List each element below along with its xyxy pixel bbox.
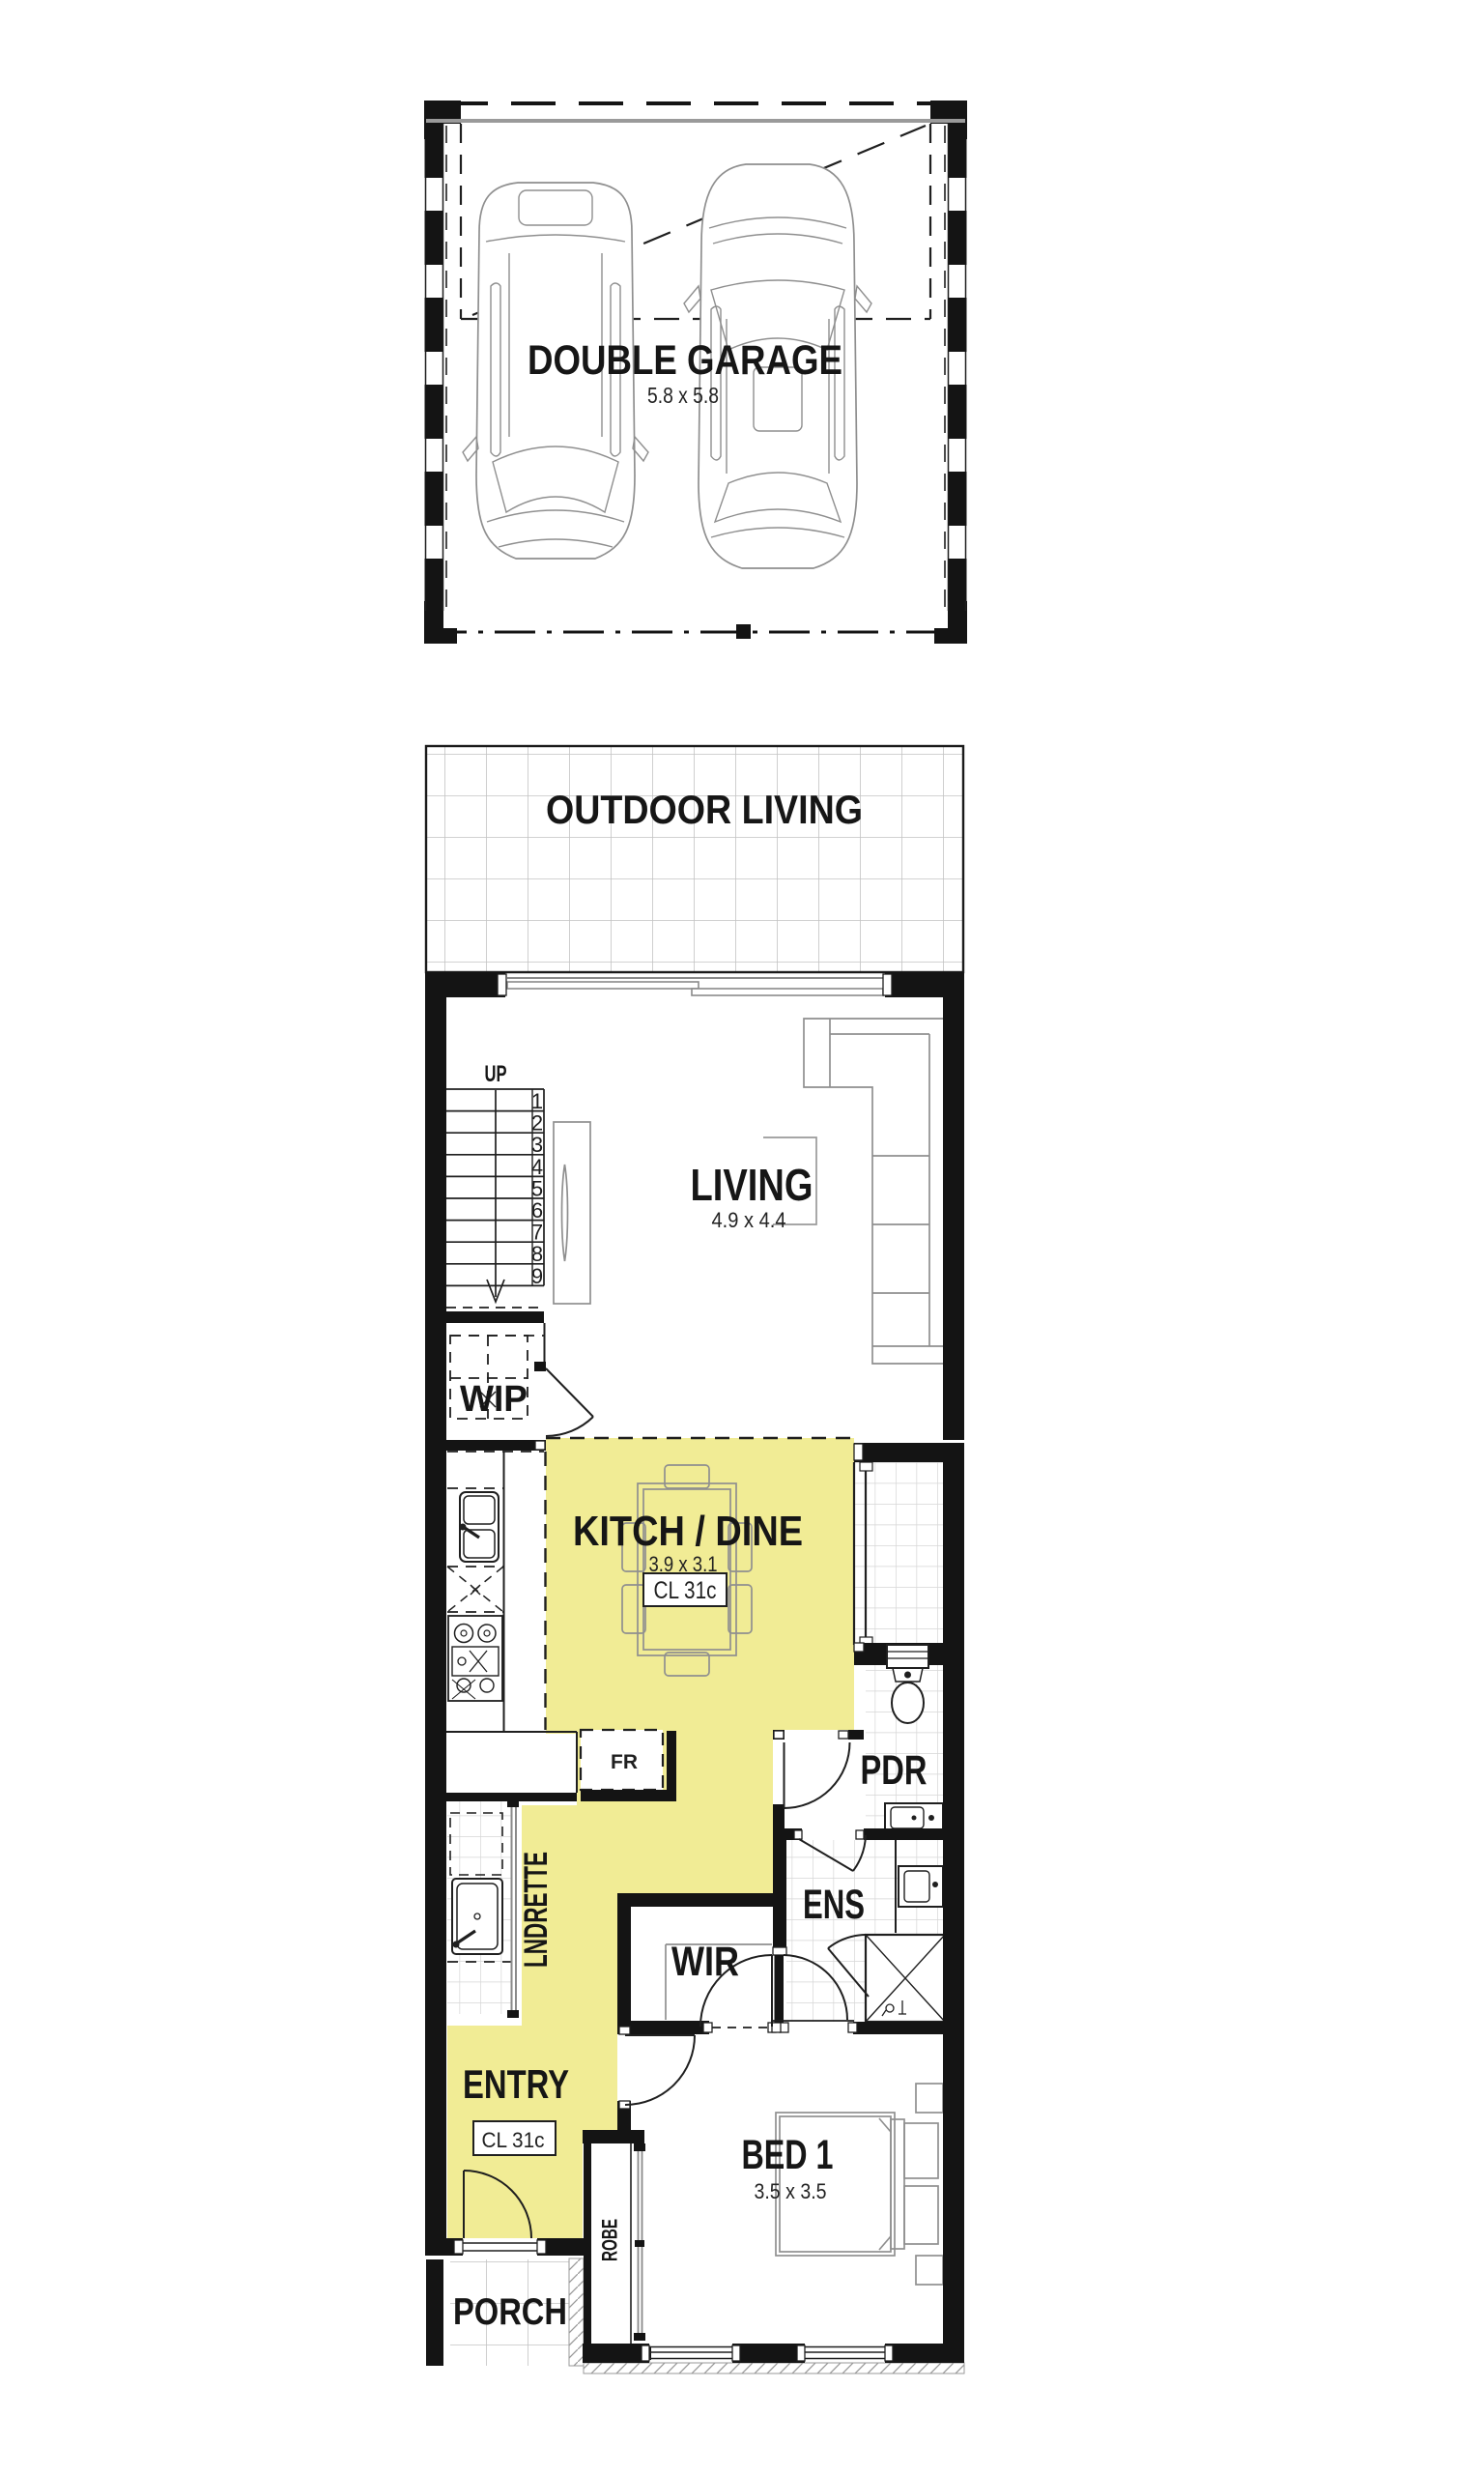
svg-text:WIP: WIP <box>460 1379 528 1420</box>
svg-text:1: 1 <box>531 1089 543 1113</box>
svg-text:BED 1: BED 1 <box>742 2132 834 2178</box>
svg-text:7: 7 <box>531 1221 543 1245</box>
svg-text:CL 31c: CL 31c <box>482 2128 545 2152</box>
svg-text:ENTRY: ENTRY <box>463 2061 569 2107</box>
svg-text:FR: FR <box>611 1751 638 1773</box>
svg-text:8: 8 <box>531 1242 543 1266</box>
svg-text:LIVING: LIVING <box>691 1160 813 1210</box>
svg-text:PDR: PDR <box>861 1747 927 1794</box>
svg-text:UP: UP <box>485 1061 507 1087</box>
svg-text:ROBE: ROBE <box>598 2219 622 2261</box>
svg-text:PORCH: PORCH <box>453 2291 567 2333</box>
svg-text:6: 6 <box>531 1198 543 1223</box>
svg-text:3.5 x 3.5: 3.5 x 3.5 <box>755 2179 827 2203</box>
svg-text:5: 5 <box>531 1176 543 1200</box>
svg-text:5.8 x 5.8: 5.8 x 5.8 <box>647 383 719 408</box>
svg-text:WIR: WIR <box>671 1939 739 1985</box>
svg-text:CL 31c: CL 31c <box>654 1577 717 1604</box>
svg-text:4.9 x 4.4: 4.9 x 4.4 <box>712 1208 786 1232</box>
svg-text:ENS: ENS <box>803 1882 865 1928</box>
svg-text:OUTDOOR LIVING: OUTDOOR LIVING <box>546 787 863 832</box>
svg-text:KITCH / DINE: KITCH / DINE <box>573 1508 803 1555</box>
svg-text:2: 2 <box>531 1111 543 1136</box>
svg-text:DOUBLE GARAGE: DOUBLE GARAGE <box>528 337 842 384</box>
svg-text:9: 9 <box>531 1264 543 1288</box>
svg-text:4: 4 <box>531 1155 543 1179</box>
svg-text:LNDRETTE: LNDRETTE <box>518 1852 555 1968</box>
svg-text:3: 3 <box>531 1133 543 1157</box>
